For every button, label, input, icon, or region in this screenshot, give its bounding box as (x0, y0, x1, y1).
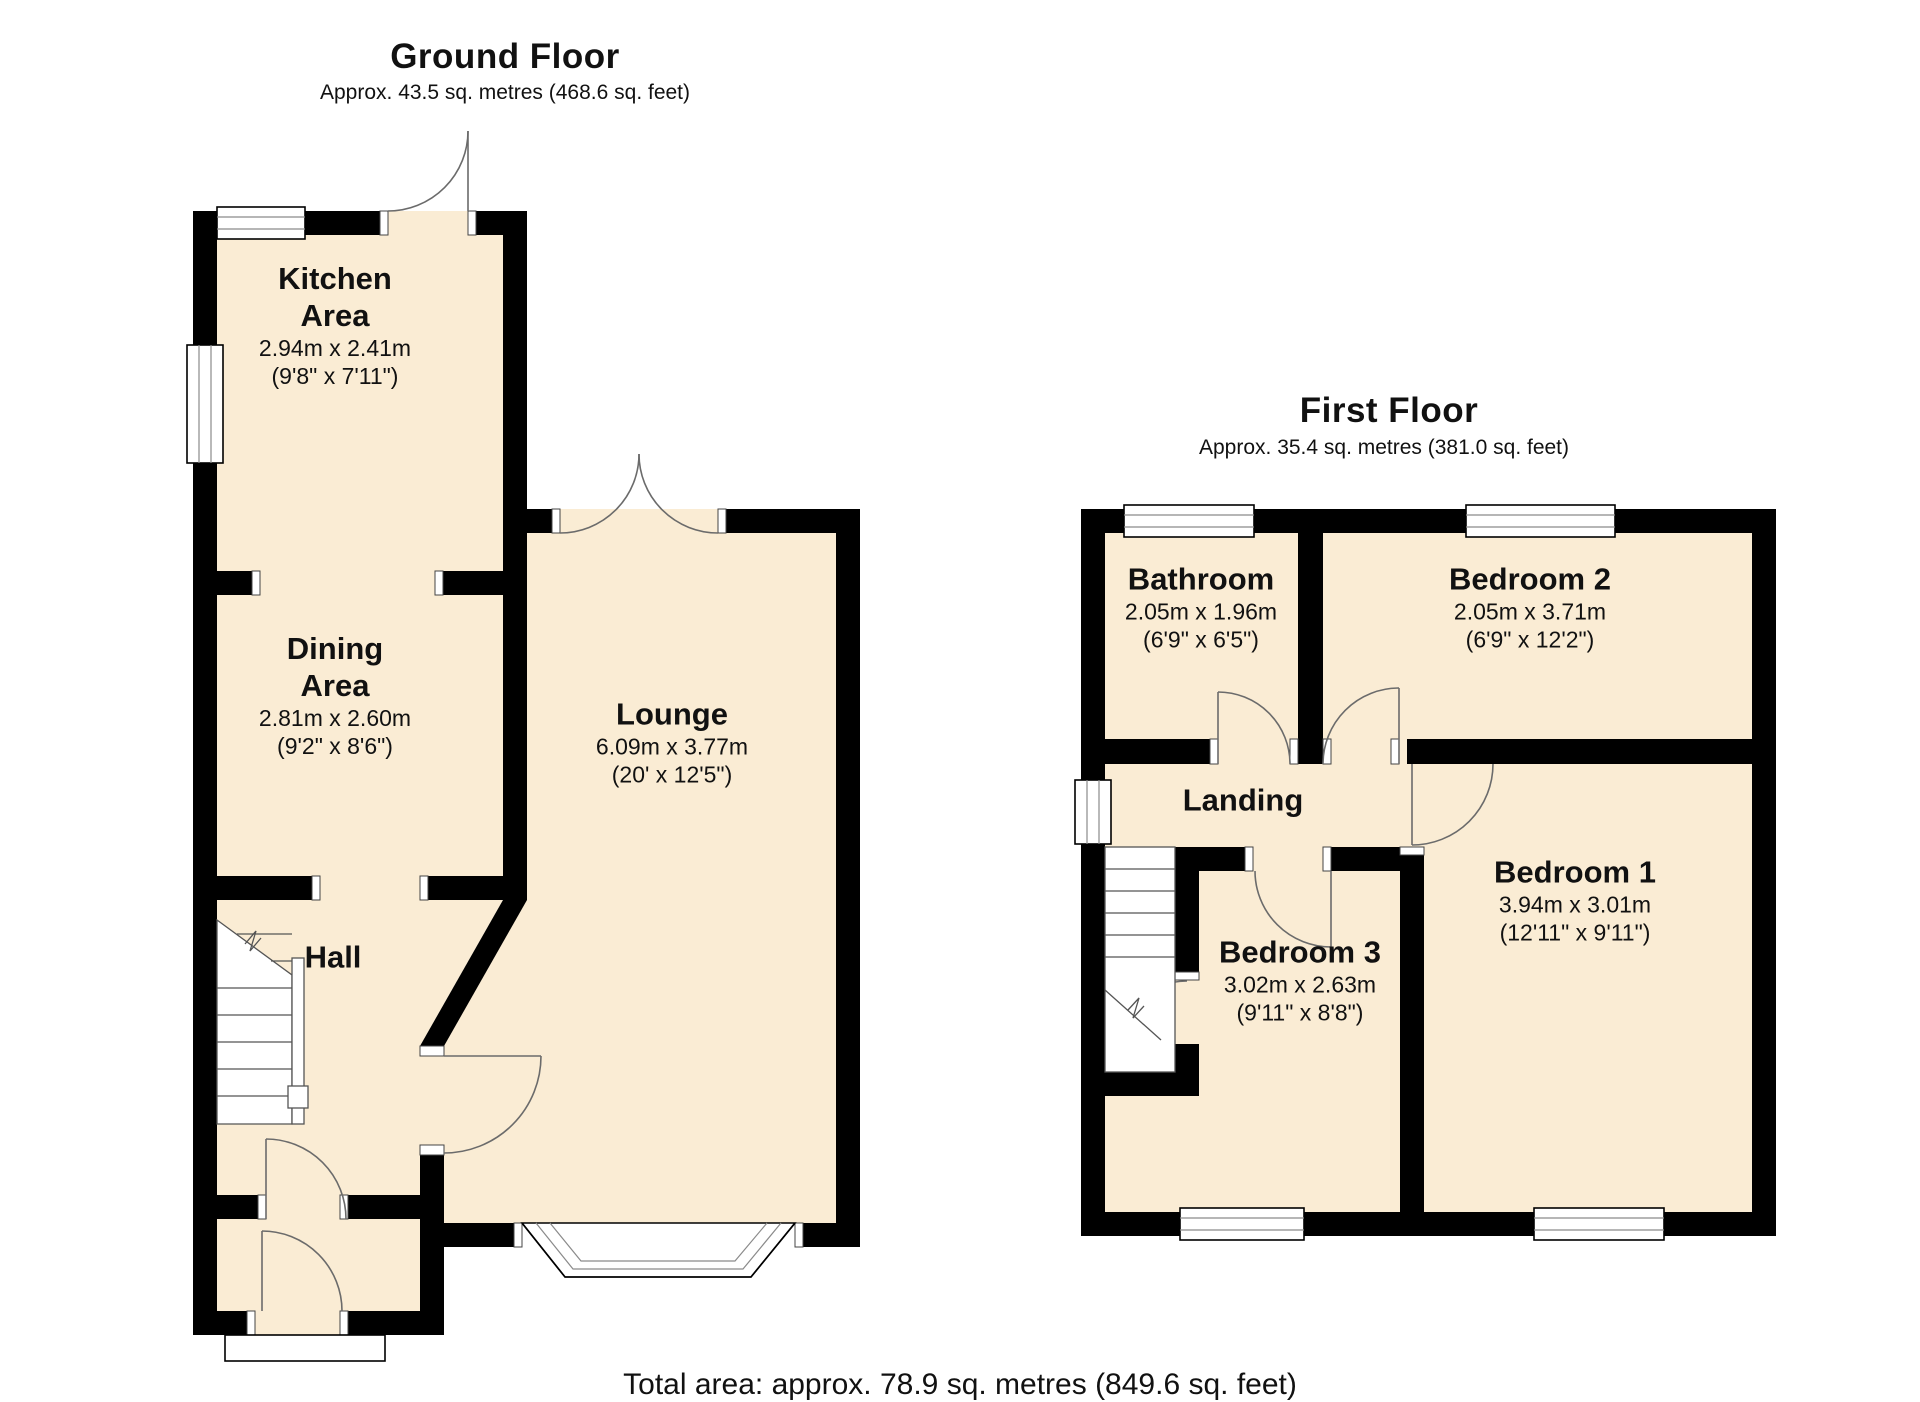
ground-floor-title: Ground Floor (390, 37, 620, 77)
lounge-bay-window (522, 1223, 795, 1277)
bedroom1-label: Bedroom 1 3.94m x 3.01m (12'11" x 9'11") (1494, 854, 1656, 947)
kitchen-side-window (187, 345, 223, 463)
front-door-step (225, 1335, 385, 1361)
lounge-label: Lounge 6.09m x 3.77m (20' x 12'5") (596, 696, 748, 789)
kitchen-top-window (217, 207, 305, 239)
bedroom2-window (1466, 505, 1615, 537)
bedroom2-label: Bedroom 2 2.05m x 3.71m (6'9" x 12'2") (1449, 561, 1611, 654)
landing-window (1075, 780, 1111, 844)
bathroom-window (1124, 505, 1254, 537)
stair-newel (288, 1086, 308, 1108)
bedroom3-label: Bedroom 3 3.02m x 2.63m (9'11" x 8'8") (1219, 934, 1381, 1027)
hall-label: Hall (305, 939, 362, 976)
floorplan-page: { "ground_floor": { "title": "Ground Flo… (0, 0, 1920, 1396)
kitchen-back-door-arc (388, 131, 468, 211)
bedroom1-window (1534, 1208, 1664, 1240)
bedroom3-window (1180, 1208, 1304, 1240)
first-floor-title: First Floor (1300, 391, 1479, 431)
dining-label: Dining Area 2.81m x 2.60m (9'2" x 8'6") (259, 630, 411, 760)
total-area-text: Total area: approx. 78.9 sq. metres (849… (623, 1368, 1297, 1402)
ground-floor-subtitle: Approx. 43.5 sq. metres (468.6 sq. feet) (320, 81, 690, 105)
first-floor-stairs (1105, 847, 1175, 1072)
first-floor-subtitle: Approx. 35.4 sq. metres (381.0 sq. feet) (1199, 436, 1569, 460)
kitchen-label: Kitchen Area 2.94m x 2.41m (9'8" x 7'11"… (259, 260, 411, 390)
bathroom-label: Bathroom 2.05m x 1.96m (6'9" x 6'5") (1125, 561, 1277, 654)
landing-label: Landing (1183, 782, 1304, 819)
